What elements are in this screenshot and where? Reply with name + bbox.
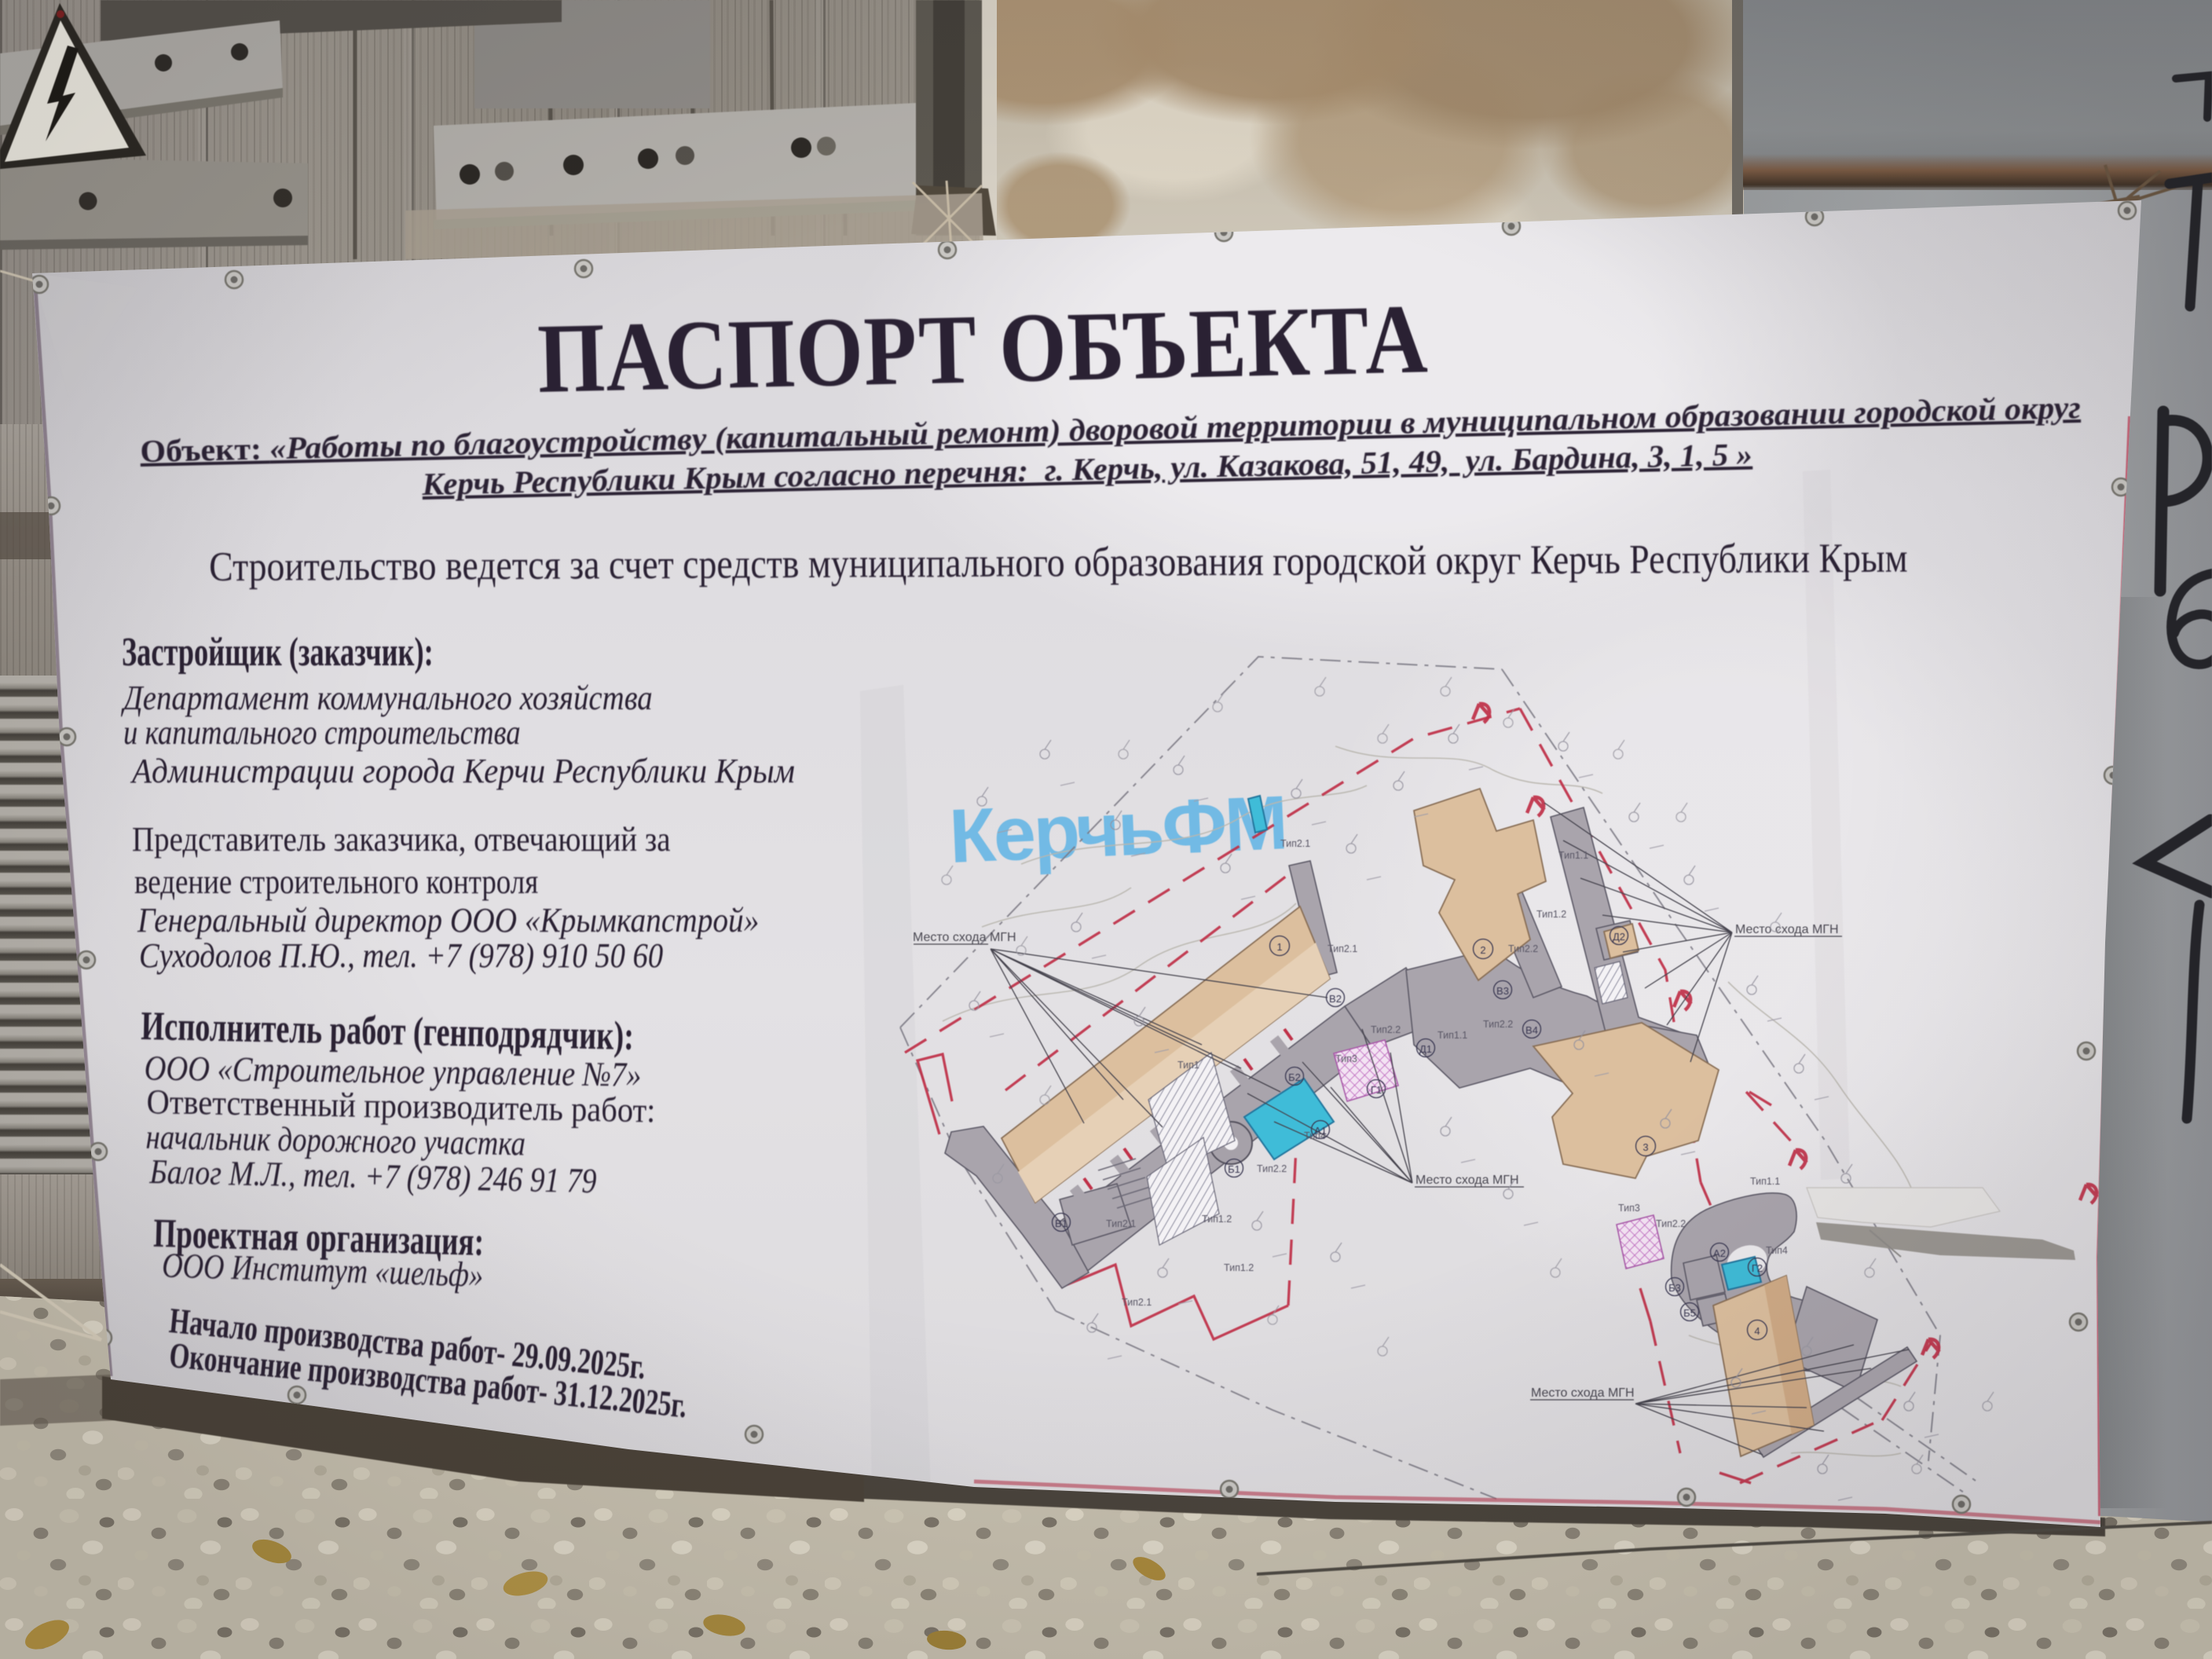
svg-text:1: 1 [1276,941,1282,953]
svg-text:Тип1.1: Тип1.1 [1558,850,1588,861]
svg-text:Тип1.1: Тип1.1 [1437,1030,1467,1041]
svg-text:Тип2.2: Тип2.2 [1656,1218,1686,1229]
svg-text:Б1: Б1 [1228,1163,1240,1175]
svg-text:Тип3: Тип3 [1618,1203,1640,1214]
svg-text:Тип1.2: Тип1.2 [1202,1214,1232,1225]
svg-text:В2: В2 [1329,993,1342,1005]
svg-text:Тип1.1: Тип1.1 [1750,1176,1780,1187]
svg-text:Тип1.2: Тип1.2 [1536,909,1566,920]
svg-text:Г2: Г2 [1752,1262,1763,1274]
svg-text:В3: В3 [1496,985,1509,997]
svg-text:Тип2.2: Тип2.2 [1508,943,1538,954]
svg-text:Б2: Б2 [1288,1071,1301,1083]
svg-text:Тип2.2: Тип2.2 [1257,1163,1287,1174]
svg-text:2: 2 [1480,944,1485,956]
svg-text:Тип2.1: Тип2.1 [1328,943,1357,954]
svg-text:3: 3 [1643,1141,1648,1153]
svg-text:Д2: Д2 [1613,931,1625,943]
svg-text:В4: В4 [1525,1024,1538,1036]
svg-text:А1: А1 [1314,1125,1327,1137]
svg-text:Тип1: Тип1 [1177,1060,1199,1071]
svg-text:Место схода МГН: Место схода МГН [1415,1174,1519,1187]
svg-text:Место схода МГН: Место схода МГН [1531,1386,1635,1400]
svg-text:Тип2.2: Тип2.2 [1483,1019,1513,1030]
svg-text:Тип2.2: Тип2.2 [1371,1024,1401,1035]
svg-text:4: 4 [1754,1325,1760,1337]
svg-text:Место схода МГН: Место схода МГН [1735,923,1839,936]
svg-text:Место схода МГН: Место схода МГН [913,931,1016,944]
svg-text:Г1: Г1 [1371,1084,1382,1096]
svg-text:Тип2.1: Тип2.1 [1106,1218,1136,1229]
svg-text:Тип4: Тип4 [1766,1245,1788,1256]
svg-text:Б3: Б3 [1668,1282,1681,1294]
svg-text:Тип3: Тип3 [1335,1053,1357,1064]
svg-text:Тип2.1: Тип2.1 [1122,1297,1152,1308]
svg-text:А2: А2 [1713,1247,1726,1259]
svg-text:Д1: Д1 [1419,1043,1432,1055]
svg-text:Тип1.2: Тип1.2 [1224,1262,1254,1273]
svg-text:Тип2.1: Тип2.1 [1280,838,1310,849]
svg-text:В1: В1 [1055,1218,1068,1229]
svg-text:Б5: Б5 [1683,1307,1696,1319]
